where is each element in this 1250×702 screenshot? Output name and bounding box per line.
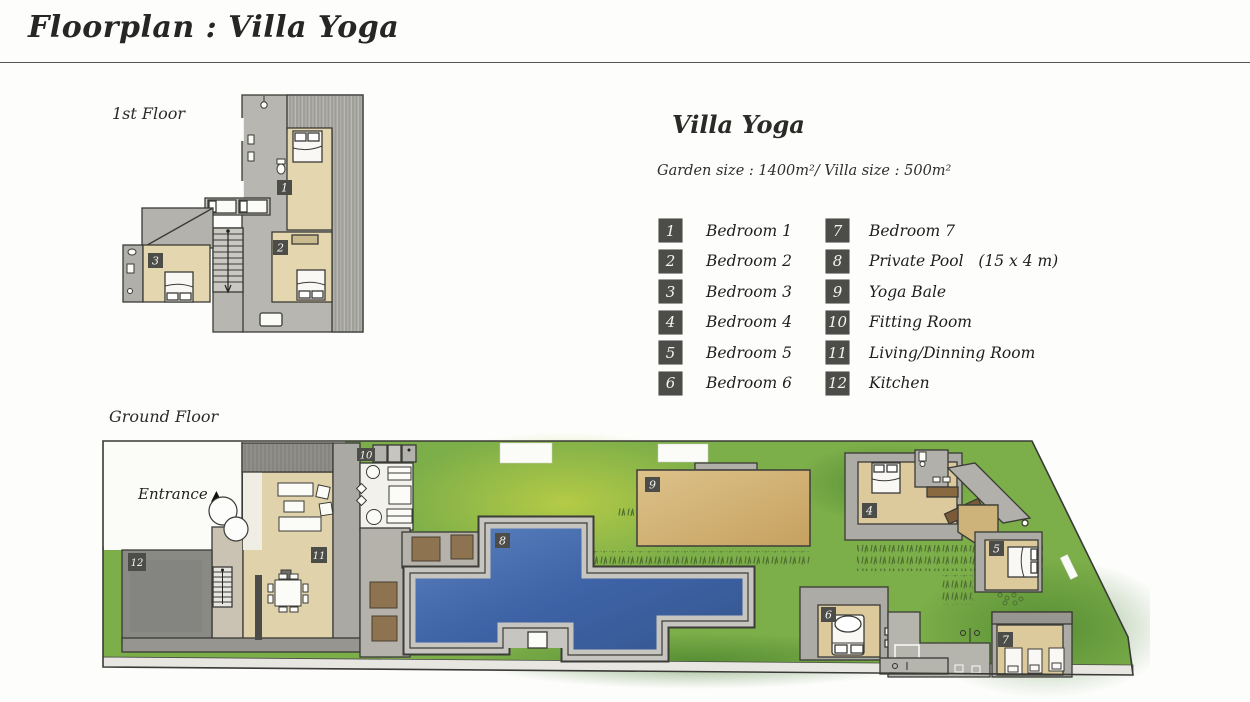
legend-label: Yoga Bale: [869, 283, 946, 301]
legend-label: Bedroom 7: [869, 222, 955, 240]
legend-label: Private Pool (15 x 4 m): [869, 252, 1058, 270]
legend-label: Bedroom 1: [706, 222, 792, 240]
legend-label: Fitting Room: [869, 313, 972, 331]
legend-item: 2Bedroom 2: [659, 250, 792, 273]
stairs: [213, 567, 232, 607]
legend-badge: 3: [659, 280, 682, 303]
legend-column-1: 1Bedroom 1 2Bedroom 2 3Bedroom 3 4Bedroo…: [659, 219, 792, 403]
daybeds: [205, 198, 270, 215]
room-badge-9: 9: [649, 479, 656, 492]
entrance-label: Entrance: [137, 485, 208, 503]
legend-item: 12Kitchen: [826, 372, 1058, 395]
room-badge-11: 11: [313, 551, 326, 562]
fence-gate: [500, 443, 552, 463]
room-badge-4: 4: [865, 505, 873, 518]
legend-badge: 10: [826, 311, 849, 334]
legend-item: 10Fitting Room: [826, 311, 1058, 334]
legend-item: 8Private Pool (15 x 4 m): [826, 250, 1058, 273]
yoga-bale-area: [637, 463, 810, 546]
legend-label: Bedroom 5: [706, 344, 792, 362]
legend-item: 11Living/Dinning Room: [826, 341, 1058, 364]
floorplan-page: Floorplan : Villa Yoga 1st Floor Villa Y…: [0, 0, 1250, 702]
legend-item: 6Bedroom 6: [659, 372, 792, 395]
legend-badge: 12: [826, 372, 849, 395]
title-divider: [0, 62, 1250, 63]
left-wing: [142, 208, 213, 248]
legend-label: Bedroom 3: [706, 283, 792, 301]
legend-label: Living/Dinning Room: [869, 344, 1035, 362]
bed-icon: [297, 270, 325, 300]
house-bottom-wall: [122, 638, 360, 652]
bed-icon: [832, 615, 864, 655]
legend-column-2: 7Bedroom 7 8Private Pool (15 x 4 m) 9Yog…: [826, 219, 1058, 403]
legend-label: Kitchen: [869, 374, 930, 392]
legend-badge: 7: [826, 219, 849, 242]
divider-wall: [255, 575, 262, 640]
room-badge-2: 2: [276, 242, 284, 255]
console-icon: [927, 487, 958, 497]
legend-badge: 2: [659, 250, 682, 273]
legend-badge: 9: [826, 280, 849, 303]
legend-label: Bedroom 4: [706, 313, 792, 331]
bed-icon: [1008, 547, 1038, 577]
bed-icon: [165, 272, 193, 302]
room-badge-6: 6: [825, 609, 832, 622]
room-badge-10: 10: [360, 451, 373, 462]
mat-icon: [260, 313, 282, 326]
legend-badge: 11: [826, 341, 849, 364]
stairs: [213, 228, 243, 332]
first-floor-plan: 1 2 3: [110, 86, 380, 346]
house-side-corridor: [333, 443, 360, 642]
fence-gate: [658, 444, 708, 462]
table-icon: [1022, 520, 1028, 526]
bedroom-6-area: [800, 587, 892, 660]
legend-badge: 8: [826, 250, 849, 273]
legend-item: 3Bedroom 3: [659, 280, 792, 303]
legend-item: 1Bedroom 1: [659, 219, 792, 242]
bedroom-5-area: [975, 532, 1042, 592]
bed-icon: [872, 463, 900, 493]
legend-badge: 6: [659, 372, 682, 395]
room-badge-3: 3: [152, 255, 159, 268]
legend-badge: 4: [659, 311, 682, 334]
door-gap: [241, 181, 244, 198]
ground-floor-plan: Entrance ▲: [95, 433, 1150, 702]
legend-item: 4Bedroom 4: [659, 311, 792, 334]
shelf-icon: [292, 235, 318, 244]
legend-item: 9Yoga Bale: [826, 280, 1058, 303]
ground-floor-label: Ground Floor: [109, 407, 218, 426]
house-roof-band: [242, 443, 333, 472]
door-gap: [241, 118, 244, 141]
legend-label: Bedroom 2: [706, 252, 792, 270]
room-badge-12: 12: [131, 558, 144, 569]
bed-icon: [1005, 648, 1064, 674]
bed-icon: [293, 131, 322, 162]
hall-floor: [243, 472, 262, 550]
bedroom-3-area: [123, 245, 210, 302]
service-walkway: [880, 658, 948, 674]
legend-item: 7Bedroom 7: [826, 219, 1058, 242]
legend-label: Bedroom 6: [706, 374, 792, 392]
room-badge-5: 5: [993, 543, 1000, 556]
pool-step-tile: [528, 632, 547, 648]
page-title: Floorplan : Villa Yoga: [28, 10, 399, 45]
legend-item: 5Bedroom 5: [659, 341, 792, 364]
room-badge-8: 8: [499, 535, 506, 548]
legend-badge: 1: [659, 219, 682, 242]
room-badge-7: 7: [1002, 634, 1009, 647]
legend-badge: 5: [659, 341, 682, 364]
villa-size-line: Garden size : 1400m²/ Villa size : 500m²: [657, 163, 951, 179]
room-badge-1: 1: [281, 182, 288, 195]
villa-name: Villa Yoga: [672, 110, 805, 139]
